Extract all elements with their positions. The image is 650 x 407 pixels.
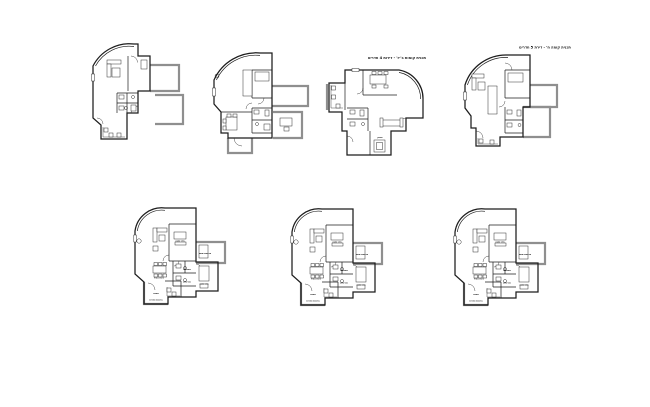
furniture-glyph <box>107 60 121 64</box>
furniture-glyph <box>174 232 186 239</box>
furniture-glyph <box>104 128 108 132</box>
furniture-glyph <box>472 74 484 78</box>
furniture-glyph <box>372 72 376 75</box>
furniture-glyph <box>159 263 163 266</box>
room-label: חדר שינה <box>495 241 505 243</box>
furniture-glyph <box>316 236 322 242</box>
furniture-glyph <box>350 110 355 114</box>
furniture-glyph <box>454 236 457 243</box>
furniture-glyph <box>332 243 343 246</box>
furniture-glyph <box>490 140 494 144</box>
furniture-glyph <box>172 292 176 296</box>
floor-plan-3: מחסן <box>327 69 423 156</box>
room-label: פינת אוכל <box>474 278 484 281</box>
furniture-glyph <box>479 139 483 143</box>
room-label: אמבטיה <box>340 270 348 272</box>
furniture-glyph <box>284 127 289 131</box>
furniture-glyph <box>329 293 333 297</box>
furniture-glyph <box>333 265 338 269</box>
room-label: חדר שינה <box>175 240 185 242</box>
furniture-glyph <box>494 233 506 240</box>
plan-linework <box>399 72 421 99</box>
furniture-glyph <box>254 110 259 114</box>
furniture-glyph <box>243 70 252 96</box>
floor-plan-5: חדר שינהמרפסת שמשחדר שינהאמבטיהשירותיםפי… <box>134 208 225 304</box>
furniture-glyph <box>264 124 270 130</box>
room-label: מחסן <box>377 137 383 139</box>
furniture-glyph <box>107 64 111 77</box>
furniture-glyph <box>350 122 355 126</box>
furniture-glyph <box>153 266 166 273</box>
furniture-glyph <box>380 118 383 127</box>
furniture-glyph <box>492 293 496 297</box>
furniture-glyph <box>487 289 491 293</box>
room-label: פינת אוכל <box>311 278 321 281</box>
furniture-glyph <box>112 68 120 77</box>
furniture-glyph <box>508 73 523 82</box>
room-label: אמבטיה <box>183 269 191 271</box>
furniture-glyph <box>483 264 487 267</box>
furniture-glyph <box>153 228 157 242</box>
furniture-glyph <box>163 263 167 266</box>
furniture-glyph <box>154 263 158 266</box>
fixture-glyph <box>362 123 365 126</box>
furniture-glyph <box>331 233 343 240</box>
fixture-glyph <box>457 240 461 244</box>
fixture-glyph <box>294 240 298 244</box>
furniture-glyph <box>92 74 95 81</box>
furniture-glyph <box>176 264 181 268</box>
plan-title-left: תכנית קומות ב'-ז' - דירות 4 חדרים <box>368 56 427 60</box>
furniture-glyph <box>336 104 340 108</box>
room-label: חדר שינה <box>332 241 342 243</box>
furniture-glyph <box>265 110 269 116</box>
furniture-glyph <box>384 72 388 75</box>
furniture-glyph <box>400 118 403 127</box>
furniture-glyph <box>507 123 512 127</box>
furniture-glyph <box>320 264 324 267</box>
furniture-glyph <box>226 117 237 130</box>
plan-linework <box>150 65 179 91</box>
plan-linework <box>246 103 252 109</box>
plan-linework <box>258 98 264 104</box>
furniture-glyph <box>227 114 231 117</box>
furniture-glyph <box>157 228 167 232</box>
room-label: שירותים <box>503 283 511 285</box>
room-label: שירותים <box>340 283 348 285</box>
furniture-glyph <box>280 118 292 126</box>
plan-linework <box>468 284 475 291</box>
furniture-glyph <box>310 267 323 274</box>
furniture-glyph <box>134 235 137 242</box>
plan-linework <box>499 101 505 107</box>
furniture-glyph <box>519 267 529 282</box>
furniture-glyph <box>332 95 336 99</box>
plans-root: מחסןחדר שינהמרפסת שמשחדר שינהאמבטיהשירות… <box>92 44 558 305</box>
furniture-glyph <box>495 243 506 246</box>
furniture-glyph <box>356 267 366 282</box>
floor-plan-6: חדר שינהמרפסת שמשחדר שינהאמבטיהשירותיםפי… <box>291 209 382 305</box>
plan-linework <box>272 86 308 106</box>
furniture-glyph <box>360 110 364 116</box>
floor-plan-7: חדר שינהמרפסת שמשחדר שינהאמבטיהשירותיםפי… <box>454 209 545 305</box>
furniture-glyph <box>199 245 208 258</box>
room-label: מרפסת שירות <box>469 301 483 303</box>
furniture-glyph <box>199 266 209 281</box>
furniture-glyph <box>377 143 383 150</box>
furniture-glyph <box>356 246 365 259</box>
furniture-glyph <box>175 242 186 245</box>
floor-plan-2 <box>213 53 309 153</box>
plan-linework <box>483 256 489 262</box>
cad-canvas: מחסןחדר שינהמרפסת שמשחדר שינהאמבטיהשירות… <box>0 0 650 407</box>
furniture-glyph <box>213 88 216 96</box>
furniture-glyph <box>233 114 237 117</box>
furniture-glyph <box>517 110 521 116</box>
plan-linework <box>234 138 242 146</box>
room-label: פינת אוכל <box>154 277 164 280</box>
furniture-glyph <box>167 288 171 292</box>
furniture-glyph <box>119 106 124 110</box>
furniture-glyph <box>370 75 386 84</box>
furniture-glyph <box>507 110 512 114</box>
floor-plan-4 <box>464 55 558 146</box>
furniture-glyph <box>477 229 487 233</box>
furniture-glyph <box>479 236 485 242</box>
room-label: מרפסת שמש <box>356 254 369 256</box>
cad-sheet: מחסןחדר שינהמרפסת שמשחדר שינהאמבטיהשירות… <box>0 0 650 407</box>
room-label: מטבח <box>310 294 316 296</box>
furniture-glyph <box>310 247 315 252</box>
furniture-glyph <box>159 235 165 241</box>
room-label: חדר שינה <box>519 285 529 287</box>
room-label: מרפסת שירות <box>149 300 163 302</box>
furniture-glyph <box>141 60 147 69</box>
furniture-glyph <box>473 267 486 274</box>
furniture-glyph <box>324 289 328 293</box>
furniture-glyph <box>131 105 136 111</box>
furniture-glyph <box>332 86 336 90</box>
room-label: מרפסת שמש <box>199 253 212 255</box>
plan-linework <box>357 88 363 94</box>
furniture-glyph <box>496 277 501 281</box>
furniture-glyph <box>311 264 315 267</box>
fixture-glyph <box>256 123 259 126</box>
room-label: מרפסת שירות <box>306 301 320 303</box>
furniture-glyph <box>372 85 376 88</box>
furniture-glyph <box>384 85 388 88</box>
room-label: שירותים <box>183 282 191 284</box>
room-label: חדר שינה <box>356 285 366 287</box>
furniture-glyph <box>291 236 294 243</box>
furniture-glyph <box>479 264 483 267</box>
furniture-glyph <box>223 119 226 123</box>
furniture-glyph <box>109 133 113 137</box>
plan-linework <box>155 95 183 124</box>
fixture-glyph <box>518 124 521 127</box>
plan-title-right: תכנית קומה ח' - דירת 5 חדרים <box>519 46 571 50</box>
plan-linework <box>305 284 312 291</box>
furniture-glyph <box>488 86 497 114</box>
plan-linework <box>530 85 557 107</box>
room-label: חדר שינה <box>199 284 209 286</box>
plan-linework <box>131 56 138 63</box>
furniture-glyph <box>519 246 528 259</box>
floor-plan-1 <box>92 44 184 139</box>
furniture-glyph <box>473 247 478 252</box>
fixture-glyph <box>137 239 141 243</box>
fixture-glyph <box>132 96 135 99</box>
plan-linework <box>228 138 252 153</box>
furniture-glyph <box>176 276 181 280</box>
furniture-glyph <box>382 120 401 126</box>
furniture-glyph <box>119 95 124 99</box>
room-label: מרפסת שמש <box>519 254 532 256</box>
plan-linework <box>476 131 483 138</box>
furniture-glyph <box>316 264 320 267</box>
plan-linework <box>465 55 530 146</box>
room-label: מטבח <box>153 293 159 295</box>
room-label: מטבח <box>473 294 479 296</box>
furniture-glyph <box>153 246 158 251</box>
room-label: אמבטיה <box>503 270 511 272</box>
plan-linework <box>347 136 353 142</box>
furniture-glyph <box>474 264 478 267</box>
furniture-glyph <box>333 277 338 281</box>
plan-linework <box>148 283 155 290</box>
furniture-glyph <box>255 72 269 81</box>
plan-linework <box>505 63 512 70</box>
furniture-glyph <box>117 133 121 137</box>
furniture-glyph <box>473 229 477 243</box>
furniture-glyph <box>496 265 501 269</box>
furniture-glyph <box>310 229 314 243</box>
furniture-glyph <box>378 72 382 75</box>
furniture-glyph <box>314 229 324 233</box>
furniture-glyph <box>352 69 359 72</box>
furniture-glyph <box>464 92 467 100</box>
furniture-glyph <box>478 82 485 90</box>
furniture-glyph <box>223 126 226 130</box>
plan-linework <box>523 107 550 137</box>
furniture-glyph <box>472 78 476 90</box>
plan-linework <box>320 256 326 262</box>
plan-linework <box>163 255 169 261</box>
